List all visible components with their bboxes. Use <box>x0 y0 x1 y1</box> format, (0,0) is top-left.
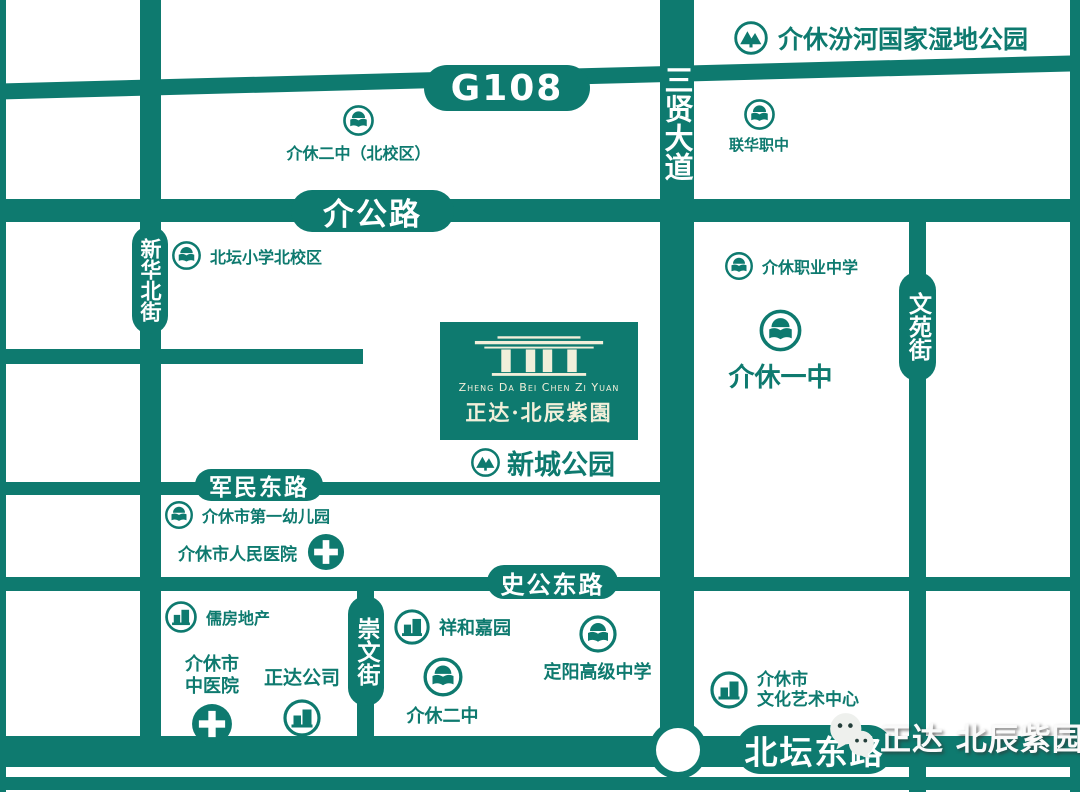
poi-xianghe-jiayuan-label: 祥和嘉园 <box>439 614 511 640</box>
poi-jiexiu-no2-north: 介休二中（北校区） <box>286 104 431 164</box>
road-label-shigong-dong-lu-text: 史公东路 <box>501 565 605 600</box>
hospital-cross-icon <box>191 703 233 745</box>
school-icon <box>578 614 618 654</box>
poi-wetland-park: 介休汾河国家湿地公园 <box>733 20 1028 56</box>
poi-tcm-hospital: 介休市 中医院 <box>172 654 252 745</box>
poi-xincheng-park-label: 新城公园 <box>507 443 615 482</box>
road-left-edge <box>0 0 6 792</box>
road-label-xinhua-bei-jie-text: 新华北街 <box>135 238 165 322</box>
poi-jiexiu-no2-label: 介休二中 <box>407 702 479 728</box>
poi-wetland-park-label: 介休汾河国家湿地公园 <box>778 20 1028 56</box>
poi-dingyang-high: 定阳高级中学 <box>535 614 660 684</box>
road-label-jiegong-lu: 介公路 <box>291 190 454 232</box>
road-label-g108-text: G108 <box>451 68 564 109</box>
road-label-sanxian-da-dao-text: 三贤大道 <box>656 65 698 181</box>
road-label-chongwen-jie: 崇文街 <box>348 596 384 706</box>
project-name-cn: 正达·北辰紫園 <box>465 397 612 427</box>
building-icon <box>709 670 749 710</box>
project-logo-block: Zheng Da Bei Chen Zi Yuan 正达·北辰紫園 <box>440 322 638 440</box>
project-name-en: Zheng Da Bei Chen Zi Yuan <box>459 381 620 394</box>
building-icon <box>164 600 198 634</box>
poi-zhengda-company-label: 正达公司 <box>264 663 340 690</box>
poi-zhengda-company: 正达公司 <box>258 663 346 738</box>
road-label-shigong-dong-lu: 史公东路 <box>487 565 618 599</box>
road-label-jiegong-lu-text: 介公路 <box>323 189 422 234</box>
road-label-g108: G108 <box>424 65 590 111</box>
school-icon <box>743 98 776 131</box>
school-icon <box>724 251 754 281</box>
wechat-watermark-text: 正达 北辰紫园 <box>880 714 1080 759</box>
building-icon <box>393 608 431 646</box>
park-icon <box>470 447 501 478</box>
building-icon <box>282 698 322 738</box>
poi-lianhua-vocational: 联华职中 <box>724 98 794 155</box>
poi-dingyang-high-label: 定阳高级中学 <box>544 658 652 684</box>
road-label-xinhua-bei-jie: 新华北街 <box>132 226 168 334</box>
poi-lianhua-vocational-label: 联华职中 <box>729 134 789 155</box>
road-label-sanxian-da-dao: 三贤大道 <box>660 48 694 198</box>
road-label-junmin-dong-lu-text: 军民东路 <box>209 468 309 502</box>
road-label-wenyuan-jie: 文苑街 <box>899 272 936 381</box>
school-icon <box>422 656 464 698</box>
poi-jiexiu-vocational-label: 介休职业中学 <box>762 254 858 278</box>
poi-culture-center-label: 介休市 文化艺术中心 <box>757 670 859 711</box>
poi-first-kindergarten: 介休市第一幼儿园 <box>164 500 330 530</box>
poi-jiexiu-no2: 介休二中 <box>400 656 485 728</box>
poi-xianghe-jiayuan: 祥和嘉园 <box>393 608 511 646</box>
poi-jiexiu-no1-label: 介休一中 <box>728 357 832 394</box>
location-map: G108 介公路 军民东路 史公东路 北坛东路 新华北街 崇文街 文苑街 三贤大… <box>0 0 1080 792</box>
poi-tcm-hospital-label: 介休市 中医院 <box>185 654 239 697</box>
wechat-watermark: 正达 北辰紫园 <box>826 712 1080 760</box>
gate-building-icon <box>473 336 605 378</box>
park-icon <box>733 20 769 56</box>
road-right-edge <box>1070 0 1080 792</box>
poi-jiexiu-no1: 介休一中 <box>718 308 843 394</box>
road-label-wenyuan-jie-text: 文苑街 <box>901 292 935 361</box>
road-unnamed-west <box>0 349 363 364</box>
poi-rufang-realty-label: 儒房地产 <box>206 605 270 629</box>
poi-culture-center: 介休市 文化艺术中心 <box>709 670 859 711</box>
poi-peoples-hospital-label: 介休市人民医院 <box>178 540 297 565</box>
road-label-chongwen-jie-text: 崇文街 <box>349 617 383 686</box>
poi-first-kindergarten-label: 介休市第一幼儿园 <box>202 503 330 527</box>
school-icon <box>164 500 194 530</box>
road-label-junmin-dong-lu: 军民东路 <box>195 469 323 501</box>
poi-beitan-primary-north: 北坛小学北校区 <box>171 240 322 271</box>
poi-beitan-primary-north-label: 北坛小学北校区 <box>210 244 322 268</box>
road-xinhua-bei-jie <box>140 0 161 755</box>
school-icon <box>342 104 375 137</box>
road-bottom-edge <box>0 777 1080 790</box>
roundabout <box>649 721 707 779</box>
poi-jiexiu-vocational: 介休职业中学 <box>724 251 858 281</box>
school-icon <box>171 240 202 271</box>
roundabout-center <box>656 728 700 772</box>
road-jiegong-lu <box>0 199 1080 222</box>
school-icon <box>758 308 803 353</box>
road-junmin-dong-lu <box>0 482 694 495</box>
poi-jiexiu-no2-north-label: 介休二中（北校区） <box>286 140 430 164</box>
poi-xincheng-park: 新城公园 <box>470 443 615 482</box>
poi-rufang-realty: 儒房地产 <box>164 600 270 634</box>
poi-peoples-hospital: 介休市人民医院 <box>178 533 345 571</box>
wechat-icon <box>826 712 878 760</box>
hospital-cross-icon <box>307 533 345 571</box>
